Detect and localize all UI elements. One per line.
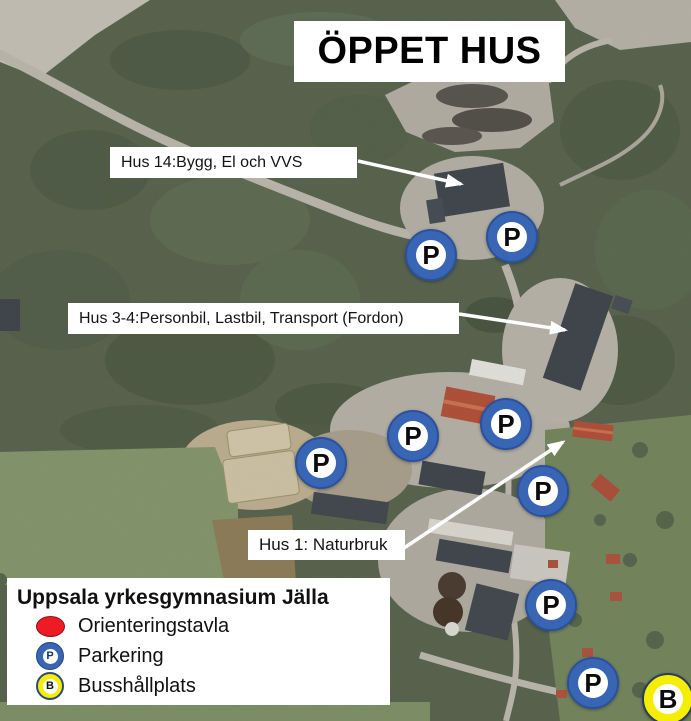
label-hus14: Hus 14:Bygg, El och VVS bbox=[110, 147, 357, 178]
bus-stop-marker: B bbox=[642, 673, 691, 721]
oppet-hus-map: PPPPPPPPB ÖPPET HUS Hus 14:Bygg, El och … bbox=[0, 0, 691, 721]
legend-item-parkering: P Parkering bbox=[17, 641, 380, 671]
page-title: ÖPPET HUS bbox=[294, 21, 565, 82]
parking-marker: P bbox=[295, 437, 347, 489]
parking-marker: P bbox=[567, 657, 619, 709]
label-hus34: Hus 3-4:Personbil, Lastbil, Transport (F… bbox=[68, 303, 459, 334]
bus-stop-icon: B bbox=[36, 672, 64, 700]
parking-marker: P bbox=[480, 398, 532, 450]
legend-item-orienteringstavla: Orienteringstavla bbox=[17, 611, 380, 641]
parking-marker: P bbox=[387, 410, 439, 462]
legend-item-label: Orienteringstavla bbox=[78, 615, 229, 638]
label-hus1: Hus 1: Naturbruk bbox=[248, 530, 405, 560]
parking-marker: P bbox=[486, 211, 538, 263]
legend: Uppsala yrkesgymnasium Jälla Orientering… bbox=[7, 578, 390, 705]
legend-item-label: Busshållplats bbox=[78, 675, 196, 698]
parking-marker: P bbox=[405, 229, 457, 281]
parking-marker: P bbox=[517, 465, 569, 517]
parking-marker: P bbox=[525, 579, 577, 631]
parking-icon: P bbox=[36, 642, 64, 670]
legend-item-label: Parkering bbox=[78, 645, 164, 668]
legend-item-busshallplats: B Busshållplats bbox=[17, 671, 380, 701]
orientation-board-icon bbox=[36, 616, 65, 637]
legend-title: Uppsala yrkesgymnasium Jälla bbox=[17, 585, 380, 611]
